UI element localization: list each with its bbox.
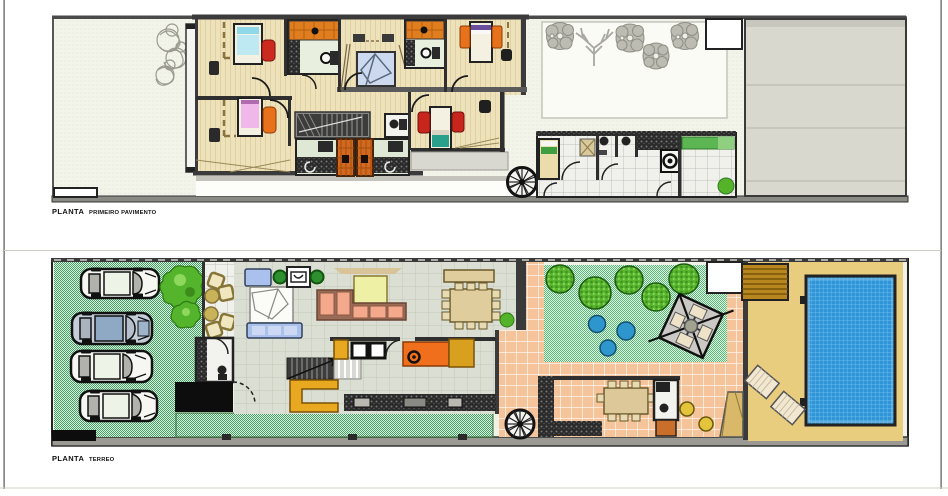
svg-text:TERREO: TERREO xyxy=(89,457,115,463)
svg-text:PRIMEIRO PAVIMENTO: PRIMEIRO PAVIMENTO xyxy=(89,210,157,216)
svg-text:PLANTA: PLANTA xyxy=(52,207,84,216)
svg-text:PLANTA: PLANTA xyxy=(52,454,84,463)
